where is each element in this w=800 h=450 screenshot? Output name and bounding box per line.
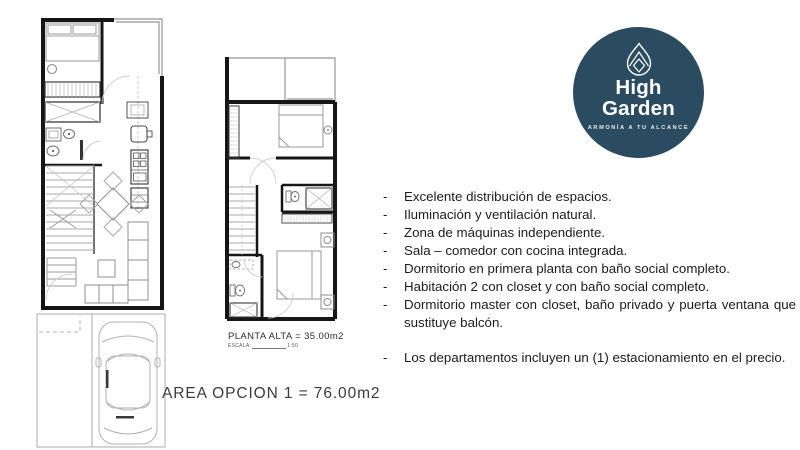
list-item: - Zona de máquinas independiente. [383,224,796,242]
feature-group-2: - Los departamentos incluyen un (1) esta… [383,349,796,367]
oven-icon [131,188,148,208]
scale-value: 1:50 [287,343,298,349]
door-leaf [80,140,83,160]
bullet-dash: - [383,349,404,367]
sink-icon [230,260,253,269]
closet-icon [282,214,332,223]
sink-icon [46,128,61,141]
list-item: - Iluminación y ventilación natural. [383,206,796,224]
bathroom-fixtures [46,128,100,160]
kitchen-sink-icon [127,102,148,118]
list-item: - Sala – comedor con cocina integrada. [383,242,796,260]
upper-floor-plan [224,55,338,321]
feature-list: - Excelente distribución de espacios. - … [383,188,796,367]
feature-group-1: - Excelente distribución de espacios. - … [383,188,796,332]
door-arc [102,76,130,104]
closet-icon [45,82,100,97]
walls [43,18,162,310]
washbasin-icon [131,126,147,142]
feature-text: Iluminación y ventilación natural. [404,206,796,224]
bullet-dash: - [383,224,404,242]
scale-rule [252,344,286,349]
feature-text: Dormitorio en primera planta con baño so… [404,260,796,278]
shower-icon [45,102,100,122]
area-option-label: AREA OPCION 1 = 76.00m2 [162,385,380,403]
car-icon [96,322,160,444]
feature-text: Zona de máquinas independiente. [404,224,796,242]
closet-icon [229,106,239,158]
bullet-dash: - [383,296,404,332]
feature-text: Dormitorio master con closet, baño priva… [404,296,796,332]
shelf-icon [47,258,76,286]
ground-floor-plan-drawing [36,14,166,448]
stove-icon [131,150,148,184]
kitchen-counter-icon [127,76,152,210]
bullet-dash: - [383,242,404,260]
bullet-dash: - [383,188,404,206]
terrace-walls [228,58,335,102]
scale-label: ESCALA: [228,343,251,349]
door-arc [83,141,100,160]
coffee-table-icon [98,260,115,277]
scale-note: ESCALA: 1:50 [228,343,298,349]
upper-floor-plan-drawing [224,55,338,321]
logo-tagline: ARMONÍA A TU ALCANCE [588,125,689,131]
feature-text: Habitación 2 con closet y con baño socia… [404,278,796,296]
nightstand-icon [321,233,334,247]
high-garden-logo: High Garden ARMONÍA A TU ALCANCE [573,27,704,158]
bed-icon [277,233,334,309]
upper-plan-label: PLANTA ALTA = 35.00m2 [228,331,344,342]
ground-floor-plan [36,14,166,448]
parking-area [37,314,165,447]
door-arc [268,293,293,318]
bullet-dash: - [383,206,404,224]
toilet-tank [230,285,235,296]
list-item: - Excelente distribución de espacios. [383,188,796,206]
stairs-icon [46,164,94,254]
toilet-tank [286,191,291,202]
logo-name-line2: Garden [602,100,675,118]
water-drop-mountain-icon [626,42,652,76]
logo-name-line1: High [615,79,661,97]
nightstand-icon [321,295,334,309]
shower-icon [230,303,257,317]
shower-icon [306,188,332,209]
door-arc [46,274,72,300]
bed-icon [279,105,332,147]
list-item: - Dormitorio en primera planta con baño … [383,260,796,278]
stairs-icon [229,185,255,255]
bed-icon [46,23,99,74]
bullet-dash: - [383,278,404,296]
bathroom-2-fixtures [286,188,332,209]
list-item: - Los departamentos incluyen un (1) esta… [383,349,796,367]
list-item: - Dormitorio master con closet, baño pri… [383,296,796,332]
bathroom-3-fixtures [230,259,262,317]
feature-text: Sala – comedor con cocina integrada. [404,242,796,260]
feature-text: Los departamentos incluyen un (1) estaci… [404,349,796,367]
feature-text: Excelente distribución de espacios. [404,188,796,206]
bullet-dash: - [383,260,404,278]
terrace-walls [114,19,162,76]
list-item: - Habitación 2 con closet y con baño soc… [383,278,796,296]
